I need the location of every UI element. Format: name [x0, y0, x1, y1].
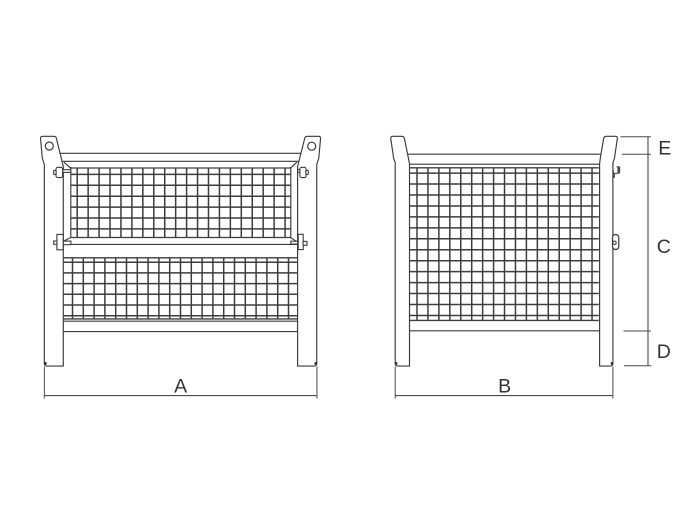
- svg-text:B: B: [498, 376, 511, 398]
- svg-text:D: D: [657, 341, 671, 363]
- svg-text:A: A: [174, 376, 187, 398]
- svg-text:C: C: [657, 236, 671, 258]
- svg-text:E: E: [658, 138, 671, 160]
